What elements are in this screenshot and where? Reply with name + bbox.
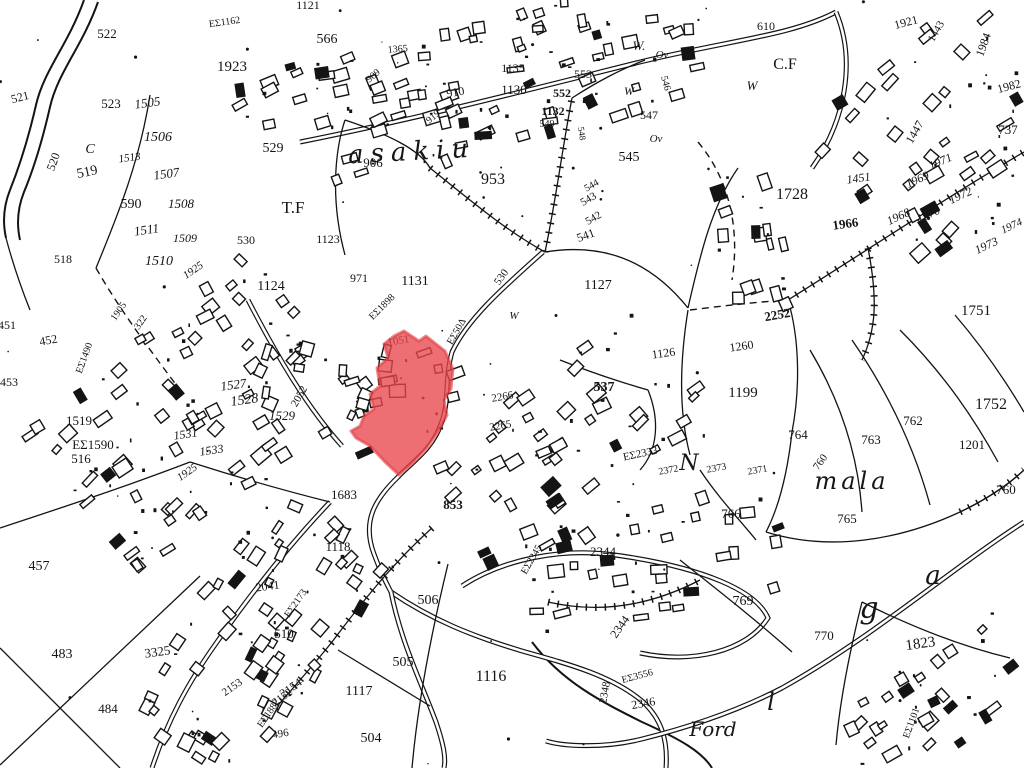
parcel-label: 1519 (66, 413, 92, 428)
parcel-label: 1531 (173, 425, 199, 442)
parcel-label: 520 (44, 151, 63, 173)
parcel-label: 1127 (584, 278, 611, 293)
parcel-label: 457 (29, 559, 50, 574)
parcel-label: 610 (757, 19, 775, 33)
parcel-label: 1124 (257, 279, 284, 294)
parcel-label: 1527 (219, 375, 247, 394)
parcel-label: W (747, 78, 759, 93)
parcel-label: 1117 (346, 684, 373, 699)
parcel-label: 971 (350, 271, 368, 285)
parcel-label: ΕΣ2333 (622, 444, 659, 463)
parcel-label: 483 (52, 647, 73, 662)
parcel-label: 1921 (893, 12, 920, 32)
parcel-label: 1528 (230, 391, 260, 410)
parcel-label: T.F (282, 198, 305, 217)
parcel-label: 1121 (296, 0, 320, 12)
parcel-label: 2344 (607, 613, 632, 641)
parcel-label: 1972 (946, 184, 974, 207)
parcel-label: 547 (640, 108, 658, 122)
parcel-label: 1199 (728, 385, 757, 401)
parcel-label: 1533 (199, 441, 225, 458)
parcel-label: 1131 (401, 274, 428, 289)
parcel-label: 765 (837, 511, 857, 526)
parcel-label: 1984 (973, 31, 994, 58)
parcel-label: 760 (996, 482, 1016, 497)
parcel-label: Ov (656, 49, 669, 61)
parcel-label: 1510 (145, 254, 173, 269)
parcel-label: ΕΣ1490 (74, 341, 95, 375)
parcel-label: 1905 (109, 300, 129, 323)
parcel-label: 590 (121, 197, 142, 212)
parcel-label: 1443 (926, 19, 948, 44)
place-name: g (859, 591, 878, 626)
parcel-label: 1123 (316, 232, 340, 246)
parcel-label: 2373 (706, 461, 728, 475)
parcel-label: 453 (0, 375, 18, 389)
parcel-label: 2372 (658, 463, 680, 477)
parcel-label: 1925 (181, 259, 206, 282)
parcel-label: 1118 (325, 539, 350, 554)
parcel-label: 1126 (651, 344, 676, 361)
parcel-label: 1130 (501, 82, 527, 97)
parcel-label: 737 (998, 122, 1018, 137)
parcel-label: 1505 (133, 93, 161, 112)
place-name: Ford (688, 717, 736, 741)
parcel-label: 1968 (884, 205, 912, 228)
parcel-label: 553 (574, 67, 592, 81)
parcel-label: 543 (578, 190, 599, 209)
parcel-label: 1260 (729, 337, 755, 354)
parcel-label: ΕΣ3556 (621, 667, 655, 686)
parcel-label: 1201 (959, 437, 985, 452)
parcel-label: 510 (274, 626, 294, 641)
place-name: asakiu (347, 134, 476, 171)
cadastral-map: 5221923566ΕΣ1162112152152315051506151315… (0, 0, 1024, 768)
parcel-label: 1728 (776, 186, 808, 203)
parcel-label: 1508 (168, 196, 195, 211)
parcel-label: 549 (540, 119, 555, 130)
parcel-label: 522 (97, 26, 117, 41)
parcel-label: 530 (237, 233, 255, 247)
parcel-label: ΕΣ1898 (367, 292, 397, 322)
parcel-label: 2252 (763, 305, 791, 324)
parcel-label: W (509, 310, 519, 322)
parcel-label: 763 (861, 432, 881, 447)
parcel-label: 545 (619, 150, 640, 165)
parcel-label: 548 (576, 126, 588, 142)
place-name: a (925, 561, 941, 591)
parcel-label: 505 (393, 655, 414, 670)
parcel-label: 1507 (152, 164, 180, 183)
parcel-label: 910 (445, 84, 465, 101)
parcel-label: 2348 (597, 680, 613, 704)
parcel-label: C (85, 142, 95, 157)
parcel-label: 762 (903, 413, 923, 428)
parcel-label: 1923 (217, 59, 247, 75)
parcel-label: ΕΣ1590 (72, 437, 114, 452)
parcel-label: 1365 (387, 43, 408, 56)
parcel-label: 1513 (118, 150, 142, 165)
parcel-label: 523 (101, 96, 121, 111)
parcel-label: 546 (658, 75, 673, 92)
parcel-label: 451 (0, 318, 16, 332)
parcel-label: 452 (38, 332, 58, 349)
parcel-label: 766 (721, 506, 741, 521)
parcel-label: 1752 (975, 396, 1007, 413)
parcel-label: C.F (773, 56, 797, 73)
parcel-label: 521 (9, 88, 30, 106)
parcel-label: 2344 (590, 544, 617, 559)
parcel-label: 518 (54, 252, 72, 266)
parcel-label: W. (633, 38, 646, 53)
parcel-label: 552 (553, 86, 571, 100)
parcel-label: 529 (263, 141, 284, 156)
parcel-label: Ov (650, 133, 663, 145)
parcel-label: 1751 (961, 303, 991, 319)
parcel-label: 519 (75, 163, 99, 182)
parcel-label: 2041 (255, 577, 281, 594)
parcel-label: 1447 (902, 118, 926, 146)
parcel-label: 769 (733, 594, 754, 609)
parcel-label: 1529 (269, 408, 296, 423)
parcel-label: 1683 (331, 487, 357, 502)
parcel-boundaries (0, 60, 1024, 768)
parcel-label: 541 (575, 226, 597, 245)
parcel-label: 496 (271, 727, 290, 742)
parcel-label: 1823 (904, 634, 936, 654)
parcel-label: ΕΣ1101 (901, 706, 922, 739)
parcel-label: 2265 (489, 418, 513, 434)
parcel-label: 953 (481, 171, 505, 188)
parcel-label: 1509 (173, 231, 197, 245)
place-name: mala (814, 467, 889, 495)
map-canvas: 5221923566ΕΣ1162112152152315051506151315… (0, 0, 1024, 768)
parcel-label: 537 (594, 380, 615, 395)
parcel-label: 1973 (972, 234, 1000, 257)
parcel-label: 770 (814, 628, 834, 643)
parcel-label: 542 (583, 209, 603, 228)
parcel-label: 1966 (831, 214, 859, 233)
parcel-label: W (624, 84, 635, 98)
parcel-label: 506 (418, 593, 439, 608)
parcel-label: 484 (98, 701, 118, 716)
parcel-label: 504 (361, 731, 382, 746)
parcel-label: 1116 (476, 668, 507, 685)
parcel-label: 1132 (541, 104, 564, 118)
parcel-label: 1511 (133, 220, 160, 238)
parcel-label: 2153 (220, 676, 245, 699)
parcel-label: ΕΣ1162 (208, 15, 241, 30)
place-name: N (678, 451, 699, 476)
parcel-label: 2371 (747, 463, 769, 477)
parcel-label: 1506 (144, 130, 172, 145)
parcel-label: 1135 (501, 61, 525, 75)
place-name: l (767, 688, 775, 716)
parcel-label: 1969 (903, 168, 931, 191)
parcel-label: 853 (443, 497, 463, 512)
parcel-label: 516 (71, 451, 91, 466)
parcel-label: 764 (788, 427, 808, 442)
parcel-label: 3325 (143, 642, 171, 660)
parcel-label: 1974 (999, 216, 1024, 236)
parcel-label: 566 (317, 32, 338, 47)
